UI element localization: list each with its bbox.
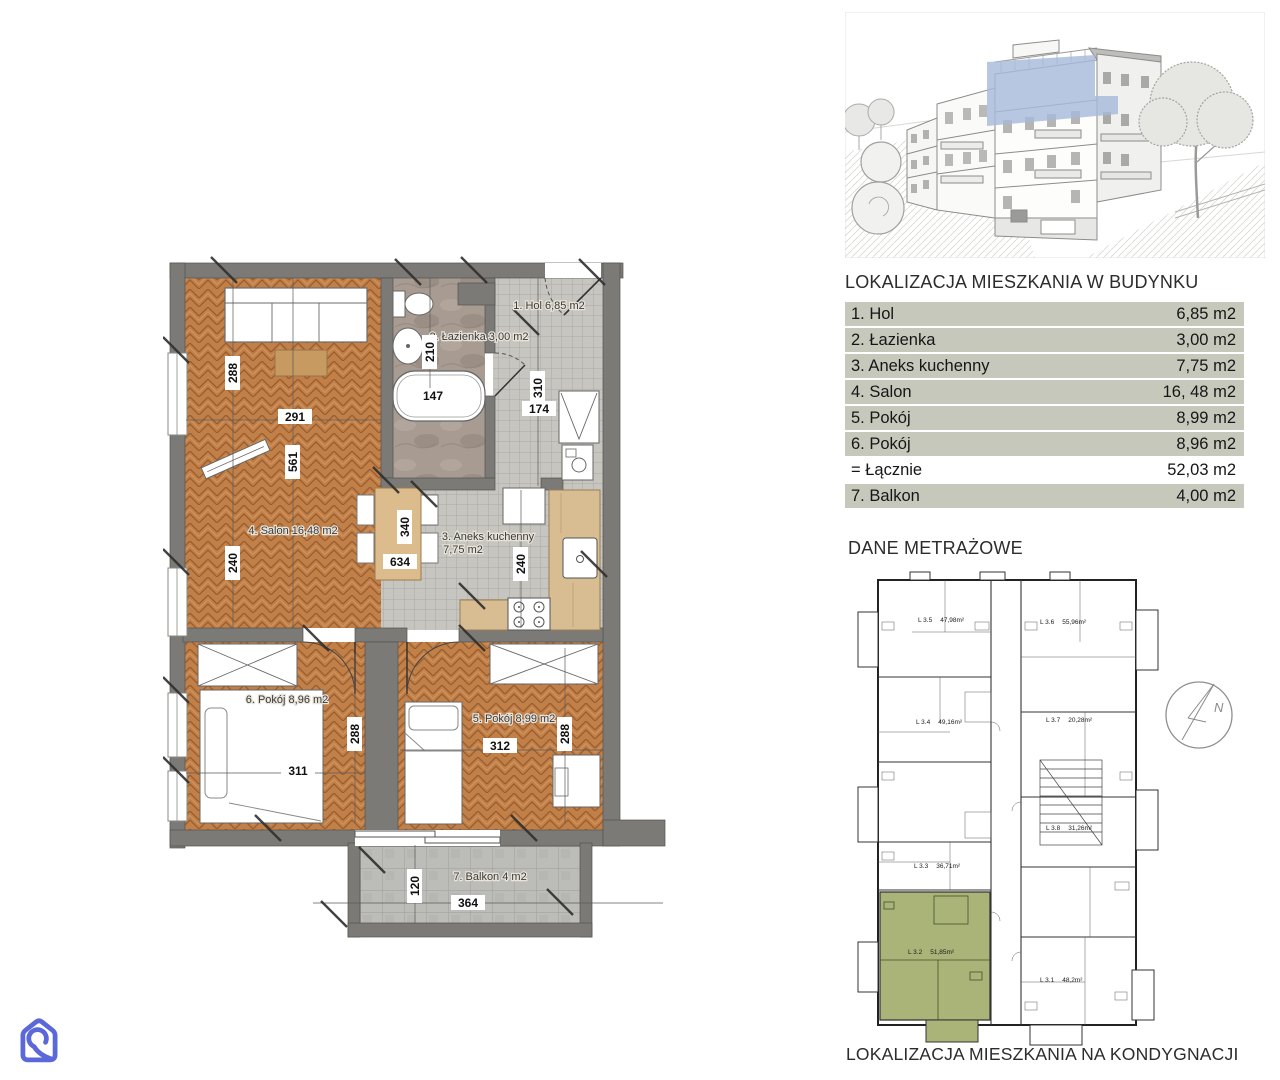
chair [357, 495, 374, 525]
table-row-total: = Łącznie52,03 m2 [845, 458, 1244, 482]
chair [421, 533, 438, 563]
svg-text:L 3.720,28m²: L 3.720,28m² [1046, 717, 1093, 724]
unit-L3-1-area: 48,2m² [1062, 977, 1083, 984]
balcony-label: 7. Balkon 4 m2 [453, 871, 526, 883]
dim-210: 210 [423, 342, 437, 362]
svg-text:L 3.547,98m²: L 3.547,98m² [918, 617, 965, 624]
hall-label: 1. Hol 6,85 m2 [513, 300, 585, 312]
location-table-title: LOKALIZACJA MIESZKANIA W BUDYNKU [845, 272, 1244, 293]
wardrobe-pokoj6 [198, 644, 297, 686]
dim-340: 340 [398, 517, 412, 537]
location-table-rows: 1. Hol6,85 m2 2. Łazienka3,00 m2 3. Anek… [845, 302, 1244, 508]
kitchen-label-line2: 7,75 m2 [443, 544, 483, 556]
coffee-table [275, 350, 327, 376]
row-label: = Łącznie [851, 461, 922, 480]
dim-288-salon: 288 [226, 363, 240, 383]
windows [168, 353, 187, 821]
row-value: 8,99 m2 [1176, 409, 1236, 428]
row-value: 8,96 m2 [1176, 435, 1236, 454]
dim-561: 561 [286, 452, 300, 472]
highlighted-unit [880, 892, 990, 1042]
toilet [393, 291, 433, 317]
svg-text:L 3.148,2m²: L 3.148,2m² [1040, 977, 1083, 984]
row-value: 7,75 m2 [1176, 357, 1236, 376]
table-row: 4. Salon16, 48 m2 [845, 380, 1244, 404]
unit-L3-7-area: 20,28m² [1068, 717, 1093, 724]
row-label: 2. Łazienka [851, 331, 935, 350]
unit-L3-4-area: 49,16m² [938, 719, 963, 726]
unit-L3-3-area: 36,71m² [936, 863, 961, 870]
unit-L3-8-area: 31,26m² [1068, 825, 1093, 832]
house-logo-icon [16, 1014, 62, 1066]
pokoj6-label: 6. Pokój 8,96 m2 [246, 694, 329, 706]
kitchen-label-line1: 3. Aneks kuchenny [442, 531, 535, 543]
row-label: 4. Salon [851, 383, 912, 402]
dim-311: 311 [288, 764, 308, 778]
row-label: 7. Balkon [851, 487, 920, 506]
unit-L3-7-label: L 3.7 [1046, 717, 1061, 724]
row-label: 6. Pokój [851, 435, 911, 454]
unit-L3-4-label: L 3.4 [916, 719, 931, 726]
bed-pokoj5 [405, 702, 462, 824]
dim-174: 174 [529, 402, 549, 416]
dim-120: 120 [408, 876, 422, 896]
unit-L3-2-balcony [926, 1020, 978, 1042]
table-row: 1. Hol6,85 m2 [845, 302, 1244, 326]
dim-364: 364 [458, 896, 478, 910]
balcony-door-panel [355, 831, 435, 837]
entrance-opening [545, 263, 601, 278]
svg-text:L 3.336,71m²: L 3.336,71m² [914, 863, 961, 870]
unit-L3-3-label: L 3.3 [914, 863, 929, 870]
north-compass-icon: N [1166, 682, 1232, 748]
kitchen-sink [563, 538, 597, 578]
row-value: 6,85 m2 [1176, 305, 1236, 324]
location-table: LOKALIZACJA MIESZKANIA W BUDYNKU 1. Hol6… [845, 272, 1244, 510]
svg-text:L 3.449,16m²: L 3.449,16m² [916, 719, 963, 726]
chair [357, 533, 374, 563]
svg-text:L 3.831,26m²: L 3.831,26m² [1046, 825, 1093, 832]
dane-metrazowe-title: DANE METRAŻOWE [848, 538, 1023, 559]
dim-310: 310 [531, 378, 545, 398]
unit-L3-5-area: 47,98m² [940, 617, 965, 624]
pokoj5-label: 5. Pokój 8,99 m2 [473, 713, 556, 725]
unit-L3-2-area-label: 51,85m² [930, 949, 955, 956]
dim-288-pokoj6: 288 [348, 724, 362, 744]
salon-label: 4. Salon 16,48 m2 [248, 525, 337, 537]
row-label: 5. Pokój [851, 409, 911, 428]
unit-L3-6-area: 55,96m² [1062, 619, 1087, 626]
unit-L3-1-label: L 3.1 [1040, 977, 1055, 984]
dim-312: 312 [490, 739, 510, 753]
unit-L3-2-area [880, 892, 990, 1020]
row-value: 4,00 m2 [1176, 487, 1236, 506]
washbasin [393, 328, 423, 364]
table-row: 7. Balkon4,00 m2 [845, 484, 1244, 508]
unit-L3-6-label: L 3.6 [1040, 619, 1055, 626]
unit-L3-2-label: L 3.2 [908, 949, 923, 956]
logo-loop [29, 1030, 51, 1059]
dim-240-salon: 240 [226, 553, 240, 573]
stove [508, 598, 550, 630]
dim-288-pokoj5: 288 [558, 724, 572, 744]
storey-plan: L 3.547,98m² L 3.655,96m² L 3.449,16m² L… [850, 562, 1270, 1047]
svg-text:L 3.251,85m²: L 3.251,85m² [908, 949, 955, 956]
unit-L3-5-label: L 3.5 [918, 617, 933, 624]
table-row: 3. Aneks kuchenny7,75 m2 [845, 354, 1244, 378]
row-value: 52,03 m2 [1167, 461, 1236, 480]
dim-240-kitchen: 240 [514, 554, 528, 574]
washing-machine [562, 445, 593, 480]
table-row: 5. Pokój8,99 m2 [845, 406, 1244, 430]
table-row: 2. Łazienka3,00 m2 [845, 328, 1244, 352]
unit-L3-8-label: L 3.8 [1046, 825, 1061, 832]
bed-pokoj6 [200, 690, 323, 823]
wardrobe-pokoj5 [490, 644, 598, 684]
dim-291: 291 [285, 410, 305, 424]
row-value: 3,00 m2 [1176, 331, 1236, 350]
sofa [225, 288, 367, 342]
row-value: 16, 48 m2 [1163, 383, 1236, 402]
fridge [503, 488, 545, 524]
apartment-floor-plan: 1. Hol 6,85 m2 2. Łazienka 3,00 m2 4. Sa… [163, 253, 673, 943]
svg-text:L 3.655,96m²: L 3.655,96m² [1040, 619, 1087, 626]
table-row: 6. Pokój8,96 m2 [845, 432, 1244, 456]
balcony-door-panel [425, 837, 500, 843]
desk-pokoj5 [553, 755, 600, 807]
building-3d-sketch [845, 12, 1265, 258]
kondygnacja-title: LOKALIZACJA MIESZKANIA NA KONDYGNACJI [846, 1044, 1239, 1065]
hall-wardrobe [559, 391, 599, 443]
dim-634: 634 [390, 555, 410, 569]
row-label: 3. Aneks kuchenny [851, 357, 990, 376]
dim-147: 147 [423, 389, 443, 403]
bathroom-label: 2. Łazienka 3,00 m2 [429, 331, 528, 343]
compass-n-label: N [1214, 700, 1224, 715]
balcony-floor [360, 843, 580, 925]
row-label: 1. Hol [851, 305, 894, 324]
